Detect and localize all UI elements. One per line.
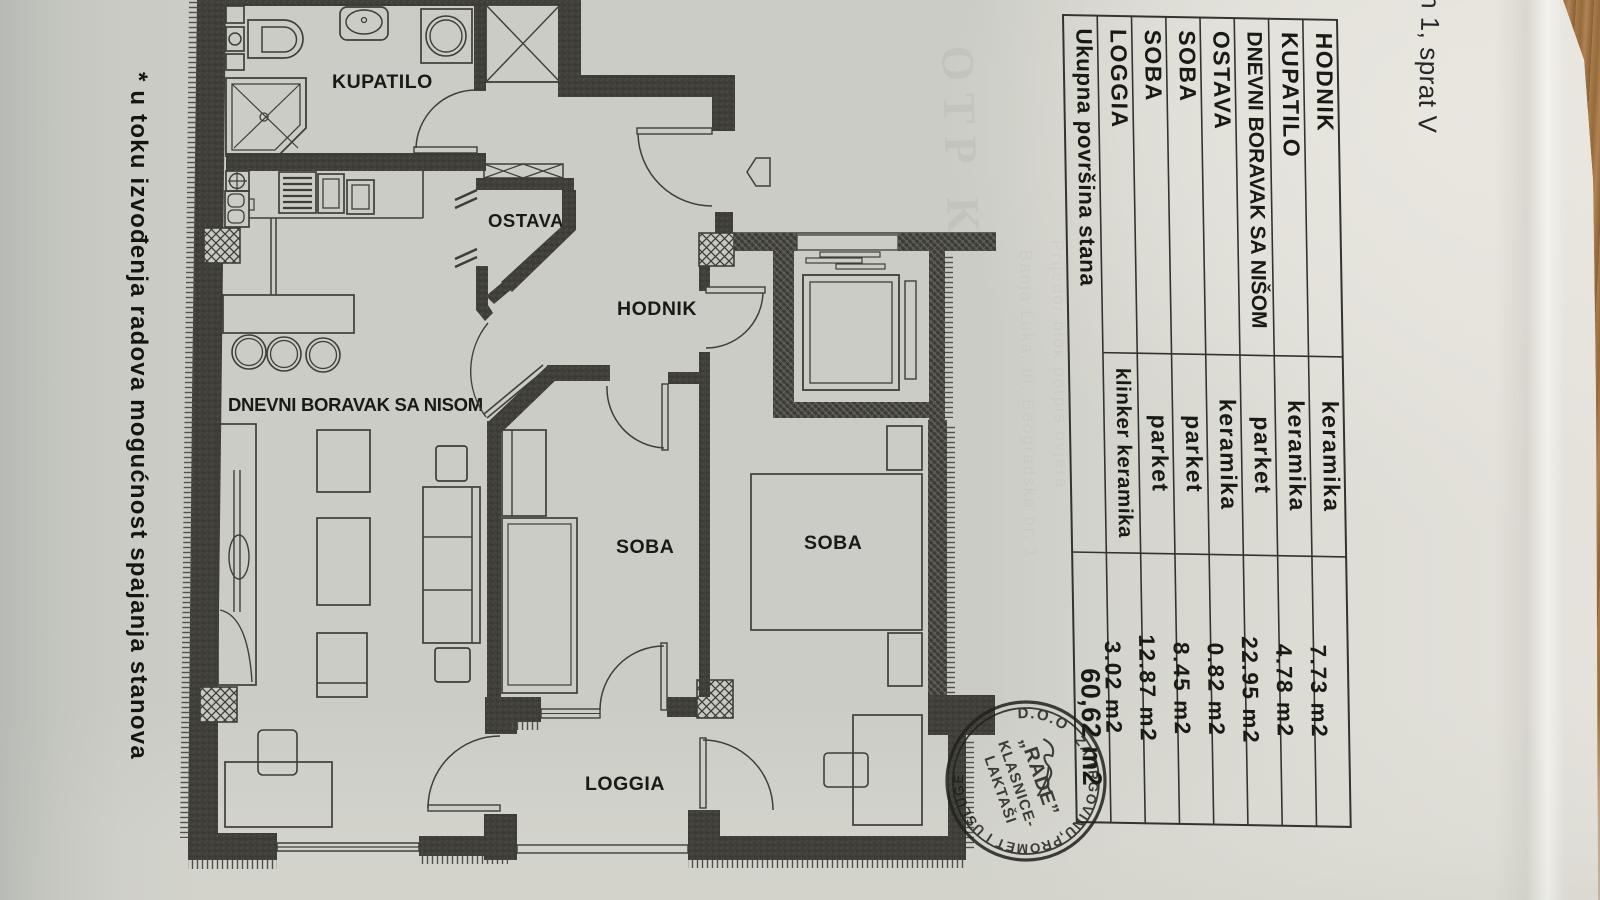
svg-text:Banja Luka, ul. Beogradska br.: Banja Luka, ul. Beogradska br. 1 (1016, 250, 1040, 560)
svg-text:HODNIK: HODNIK (1311, 32, 1339, 132)
svg-text:OTP K: OTP K (932, 45, 990, 246)
svg-text:keramika: keramika (1317, 401, 1345, 513)
svg-text:KUPATILO: KUPATILO (1277, 32, 1305, 159)
svg-text:parket: parket (1249, 416, 1276, 495)
svg-text:4.78 m2: 4.78 m2 (1271, 644, 1298, 738)
svg-text:LOGGIA: LOGGIA (1105, 29, 1133, 129)
svg-text:klinker keramika: klinker keramika (1111, 368, 1137, 539)
svg-text:3.02 m2: 3.02 m2 (1100, 641, 1127, 735)
svg-text:8.45 m2: 8.45 m2 (1168, 642, 1195, 736)
svg-text:SOBA: SOBA (1140, 29, 1167, 102)
svg-text:n 1, sprat V: n 1, sprat V (1412, 0, 1446, 134)
svg-text:22.95 m2: 22.95 m2 (1237, 636, 1264, 744)
svg-text:DNEVNI BORAVAK SA NIŠOM: DNEVNI BORAVAK SA NIŠOM (1242, 31, 1271, 329)
svg-text:keramika: keramika (1214, 399, 1242, 511)
svg-text:OSTAVA: OSTAVA (488, 210, 564, 231)
svg-text:parket: parket (1146, 414, 1173, 493)
svg-text:SOBA: SOBA (616, 536, 674, 558)
svg-text:OSTAVA: OSTAVA (1208, 31, 1236, 131)
svg-text:HODNIK: HODNIK (617, 298, 697, 320)
svg-text:Ukupna površina stana: Ukupna površina stana (1071, 28, 1100, 286)
svg-text:parket: parket (1181, 415, 1208, 494)
svg-text:keramika: keramika (1283, 400, 1311, 512)
svg-text:7.73 m2: 7.73 m2 (1305, 644, 1332, 738)
svg-text:12.87 m2: 12.87 m2 (1134, 634, 1161, 742)
svg-text:DNEVNI BORAVAK SA NISOM: DNEVNI BORAVAK SA NISOM (228, 394, 483, 415)
svg-text:KUPATILO: KUPATILO (332, 71, 433, 93)
svg-text:LOGGIA: LOGGIA (585, 773, 665, 795)
svg-text:0.82 m2: 0.82 m2 (1203, 642, 1230, 736)
svg-text:SOBA: SOBA (804, 532, 862, 554)
svg-text:SOBA: SOBA (1174, 30, 1201, 103)
svg-text:* u toku izvođenja radova mogu: * u toku izvođenja radova mogućnost spaj… (125, 72, 152, 760)
